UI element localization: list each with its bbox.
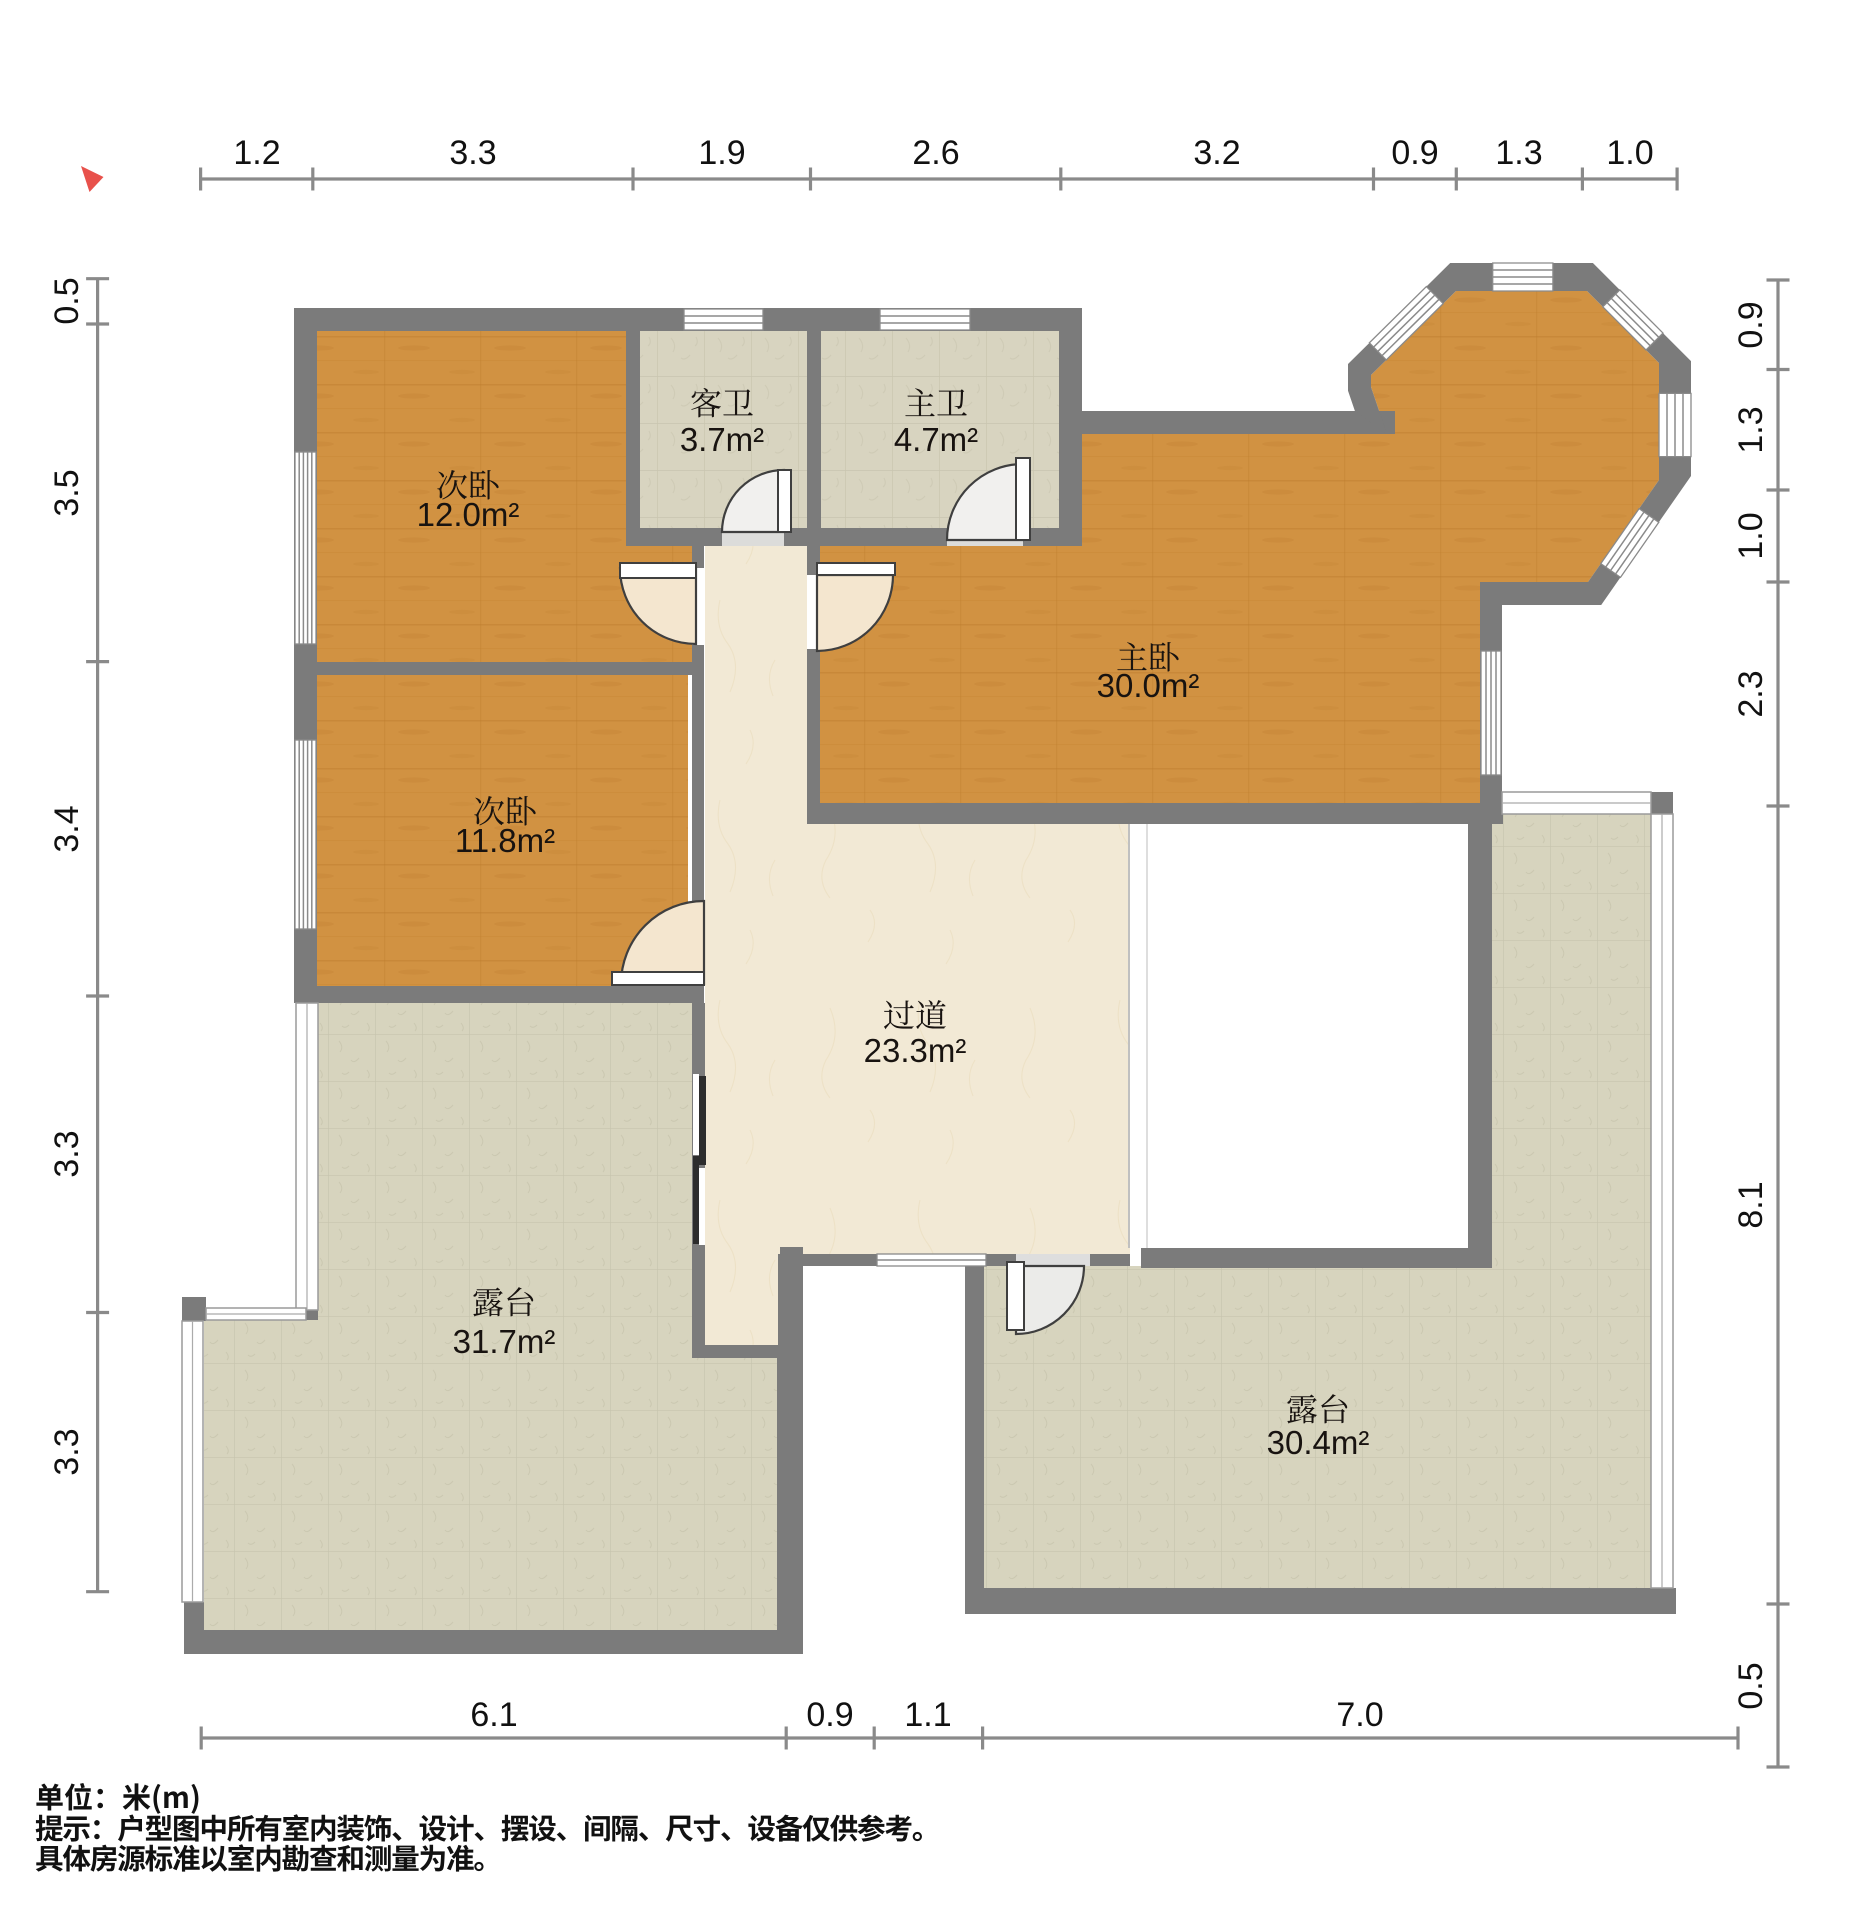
svg-text:3.2: 3.2 [1193, 134, 1240, 172]
svg-text:23.3m²: 23.3m² [864, 1032, 967, 1069]
svg-text:1.0: 1.0 [1732, 512, 1770, 559]
svg-text:1.3: 1.3 [1495, 134, 1542, 172]
svg-text:1.2: 1.2 [233, 134, 280, 172]
svg-text:3.3: 3.3 [48, 1130, 86, 1177]
svg-text:0.5: 0.5 [1732, 1662, 1770, 1709]
svg-text:1.1: 1.1 [904, 1696, 951, 1734]
svg-text:0.9: 0.9 [806, 1696, 853, 1734]
svg-text:3.3: 3.3 [449, 134, 496, 172]
svg-text:3.7m²: 3.7m² [680, 421, 764, 458]
svg-text:8.1: 8.1 [1732, 1181, 1770, 1228]
svg-text:0.9: 0.9 [1391, 134, 1438, 172]
svg-text:1.0: 1.0 [1606, 134, 1653, 172]
svg-text:7.0: 7.0 [1336, 1696, 1383, 1734]
svg-text:12.0m²: 12.0m² [417, 496, 520, 533]
svg-text:3.3: 3.3 [48, 1428, 86, 1475]
svg-text:0.9: 0.9 [1732, 301, 1770, 348]
svg-text:3.4: 3.4 [48, 805, 86, 852]
svg-text:6.1: 6.1 [470, 1696, 517, 1734]
svg-text:31.7m²: 31.7m² [453, 1323, 556, 1360]
svg-text:1.3: 1.3 [1732, 406, 1770, 453]
svg-text:2.6: 2.6 [912, 134, 959, 172]
svg-text:11.8m²: 11.8m² [455, 822, 555, 859]
svg-text:1.9: 1.9 [698, 134, 745, 172]
svg-text:3.5: 3.5 [48, 469, 86, 516]
svg-text:30.0m²: 30.0m² [1097, 667, 1200, 704]
svg-text:30.4m²: 30.4m² [1267, 1424, 1370, 1461]
svg-text:2.3: 2.3 [1732, 670, 1770, 717]
svg-text:0.5: 0.5 [48, 277, 86, 324]
svg-text:4.7m²: 4.7m² [894, 421, 978, 458]
